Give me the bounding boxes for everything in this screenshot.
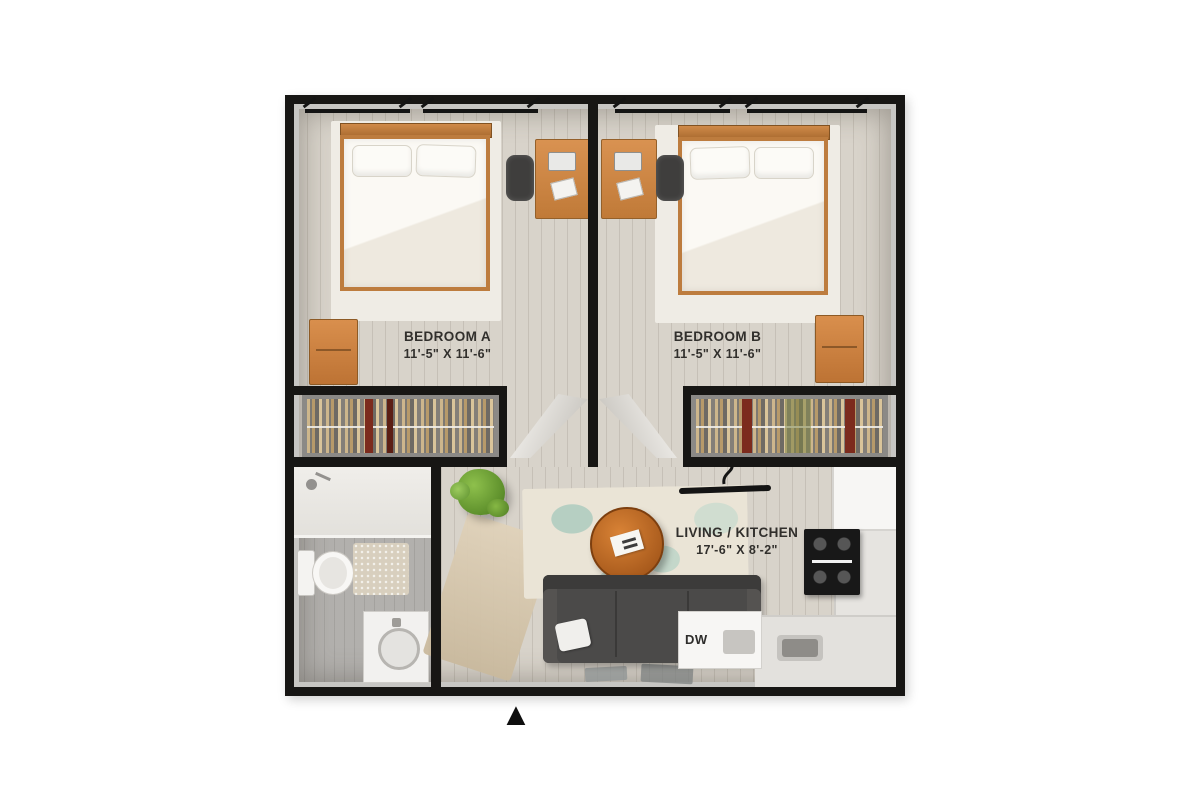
bedroom-a-label: BEDROOM A 11'-5" X 11'-6" [360,328,535,363]
wall [294,457,507,467]
dishwasher: DW [678,611,762,669]
dishwasher-inset [723,630,755,654]
floor-plan: DW BEDROOM A 11'-5" X 11'-6" BEDROOM B 1… [285,95,905,696]
bedroom-b-desk [601,139,657,219]
room-dimensions: 11'-5" X 11'-6" [630,346,805,363]
kitchen-sink [777,635,823,661]
bedroom-b-desk-chair [656,155,684,201]
wall [431,457,441,687]
wall [683,386,896,395]
wall [285,95,294,696]
bedroom-b-pillow [754,147,814,179]
closet-clothing-accent [845,399,855,453]
window [305,109,410,113]
bedroom-b-nightstand [815,315,864,383]
room-name: BEDROOM B [630,328,805,346]
wall [588,95,598,467]
closet-clothing-accent [365,399,373,453]
toilet [312,551,354,595]
wall [499,386,507,467]
vanity-sink [363,611,429,683]
closet-clothing-accent [742,399,752,453]
wall [683,386,691,467]
refrigerator [832,467,896,531]
bedroom-b-label: BEDROOM B 11'-5" X 11'-6" [630,328,805,363]
room-name: BEDROOM A [360,328,535,346]
room-name: LIVING / KITCHEN [642,524,832,542]
bedroom-b-pillow [689,146,750,180]
hanging-clothes [307,399,494,453]
floor-mat [585,666,628,682]
bedroom-a-nightstand [309,319,358,385]
closet-clothing-accent [387,399,393,453]
wall [683,457,896,467]
bedroom-a-pillow [415,144,476,178]
closet-clothing-accent [785,399,811,453]
dishwasher-label: DW [685,632,708,647]
window [423,109,538,113]
wall [294,386,507,395]
shower-rod [294,535,431,538]
bath-mat [353,543,409,595]
room-dimensions: 17'-6" X 8'-2" [642,542,832,559]
shower [294,467,431,537]
wall [285,687,905,696]
bedroom-a-desk-chair [506,155,534,201]
floor-plan-canvas: DW BEDROOM A 11'-5" X 11'-6" BEDROOM B 1… [0,0,1189,800]
room-dimensions: 11'-5" X 11'-6" [360,346,535,363]
bedroom-a-closet [302,395,499,457]
bedroom-a-desk [535,139,591,219]
window [747,109,867,113]
wall [896,95,905,696]
bedroom-a-pillow [352,145,412,177]
window [615,109,730,113]
ceiling-light-icon [677,463,772,497]
plant-icon [457,469,505,515]
entrance-marker-icon: ▲ [494,699,538,729]
living-kitchen-label: LIVING / KITCHEN 17'-6" X 8'-2" [642,524,832,559]
